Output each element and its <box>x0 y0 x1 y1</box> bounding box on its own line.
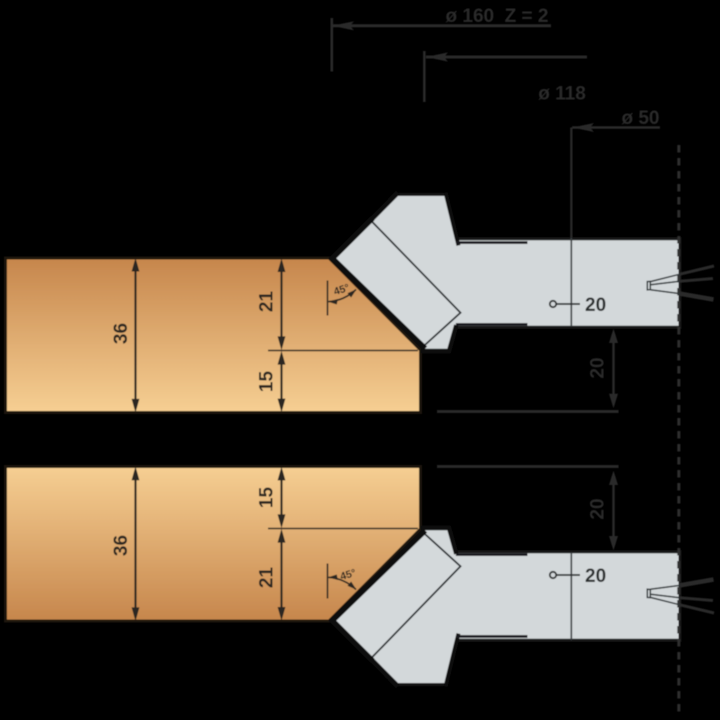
svg-text:21: 21 <box>257 567 278 589</box>
svg-text:15: 15 <box>257 487 278 509</box>
svg-text:15: 15 <box>257 371 278 393</box>
svg-text:20: 20 <box>585 566 606 587</box>
svg-text:ø 160 Z = 2: ø 160 Z = 2 <box>446 6 549 27</box>
svg-text:ø 118: ø 118 <box>538 84 586 105</box>
svg-text:20: 20 <box>588 498 609 519</box>
svg-text:21: 21 <box>257 291 278 313</box>
svg-text:20: 20 <box>585 295 606 316</box>
svg-text:36: 36 <box>111 323 132 344</box>
svg-text:ø 50: ø 50 <box>621 108 659 129</box>
svg-text:20: 20 <box>588 357 609 378</box>
svg-text:36: 36 <box>111 535 132 556</box>
